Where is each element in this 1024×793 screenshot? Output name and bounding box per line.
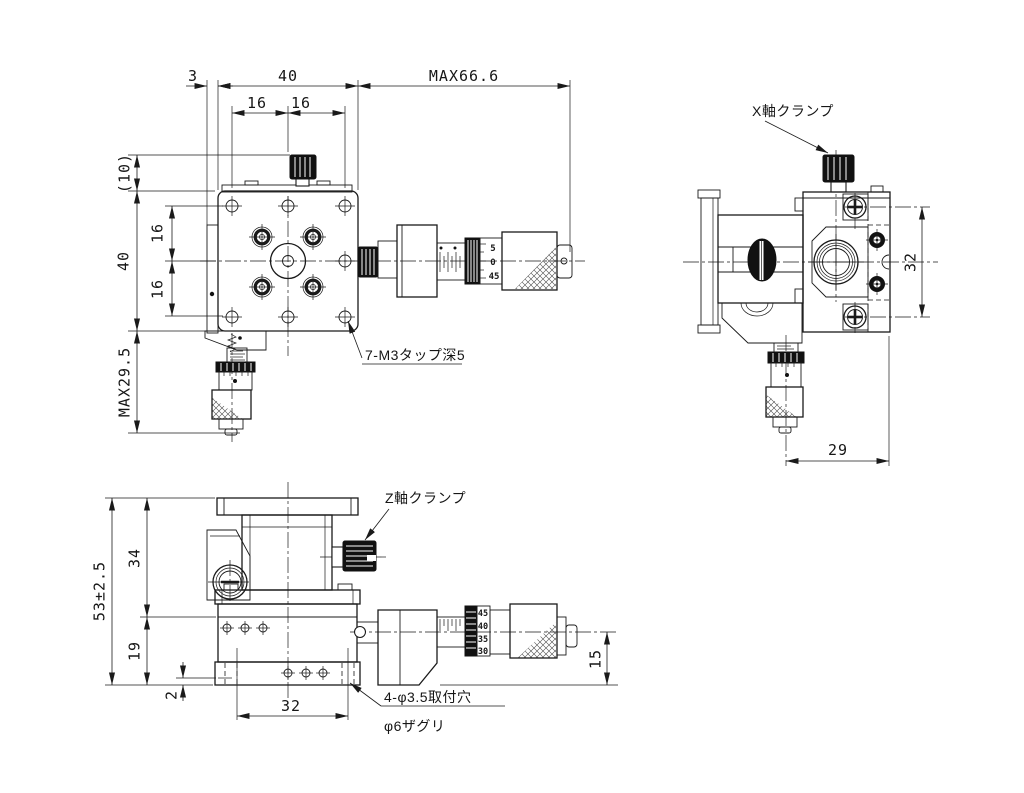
front-view: 5 0 45 xyxy=(115,67,586,442)
b-scale-35: 35 xyxy=(478,635,488,645)
side-dimensions: 32 29 xyxy=(786,207,922,466)
dim-total-53: 53±2.5 xyxy=(91,561,109,621)
dim-pitch-16-b: 16 xyxy=(149,279,167,299)
x-scale-45: 45 xyxy=(489,272,500,282)
b-scale-40: 40 xyxy=(478,622,488,632)
bottom-micrometer-thimble: 45 40 35 30 xyxy=(465,606,490,657)
front-clamp-knob xyxy=(290,155,316,186)
dim-upper-34: 34 xyxy=(126,548,144,568)
side-optical-bore xyxy=(808,234,864,290)
side-knurled-ring xyxy=(768,352,804,363)
dim-lower-19: 19 xyxy=(126,641,144,661)
x-scale-5: 5 xyxy=(490,244,495,254)
mount-callout-line2: φ6ザグリ xyxy=(384,718,445,734)
front-side-rail xyxy=(207,225,218,333)
dim-height-32: 32 xyxy=(902,252,920,272)
dim-depth-29: 29 xyxy=(828,441,848,459)
front-counterbore-screws xyxy=(249,224,326,300)
bottom-dimensions: 53±2.5 34 19 2 32 15 xyxy=(91,498,619,720)
x-clamp-label: X軸クランプ xyxy=(752,103,834,119)
mount-callout-line1: 4-φ3.5取付穴 xyxy=(384,689,472,705)
side-x-clamp-knob xyxy=(823,155,854,192)
tap-callout-text: 7-M3タップ深5 xyxy=(365,347,465,363)
side-z-micrometer xyxy=(766,343,804,433)
x-fine-knob xyxy=(358,247,378,277)
side-cb-screw-top xyxy=(866,229,888,251)
dim-axis-15: 15 xyxy=(587,649,605,669)
side-view: X軸クランプ xyxy=(683,103,938,466)
front-stage-body xyxy=(205,155,358,352)
dim-knob-10: (10) xyxy=(116,153,134,193)
front-lower-bracket xyxy=(205,331,266,350)
mount-callout: 4-φ3.5取付穴 φ6ザグリ xyxy=(350,683,505,734)
dim-height-40: 40 xyxy=(115,251,133,271)
dim-width-40: 40 xyxy=(278,67,298,85)
front-z-micrometer xyxy=(212,348,255,435)
b-scale-45: 45 xyxy=(478,609,488,619)
z-knurled-ring xyxy=(216,362,255,372)
z-clamp-label: Z軸クランプ xyxy=(385,490,466,506)
side-body xyxy=(698,186,890,343)
dim-max-66: MAX66.6 xyxy=(429,67,499,85)
side-cb-screw-bottom xyxy=(866,273,888,295)
z-clamp: Z軸クランプ xyxy=(332,490,466,571)
dim-pitch-16-t: 16 xyxy=(149,223,167,243)
tap-callout: 7-M3タップ深5 xyxy=(348,321,465,364)
x-scale-0: 0 xyxy=(490,258,495,268)
bottom-x-micrometer: 45 40 35 30 xyxy=(355,604,578,685)
counterbore-hidden-lines xyxy=(225,663,354,684)
side-centerlines xyxy=(683,150,938,466)
x-clamp-callout: X軸クランプ xyxy=(752,103,834,153)
bottom-view: Z軸クランプ xyxy=(91,482,619,734)
m3-tapped-holes xyxy=(222,196,355,327)
b-scale-30: 30 xyxy=(478,647,488,657)
dim-pitch-16-r: 16 xyxy=(291,94,311,112)
dim-offset-3: 3 xyxy=(188,67,198,85)
dim-lip-2: 2 xyxy=(163,690,181,700)
engineering-drawing-page: 5 0 45 xyxy=(0,0,1024,793)
dim-pitch-32: 32 xyxy=(281,697,301,715)
base-side-holes xyxy=(220,621,270,635)
mount-holes xyxy=(281,666,330,680)
dim-max-29-5: MAX29.5 xyxy=(116,347,134,417)
drawing-canvas: 5 0 45 xyxy=(0,0,1024,793)
dim-pitch-16-l: 16 xyxy=(247,94,267,112)
